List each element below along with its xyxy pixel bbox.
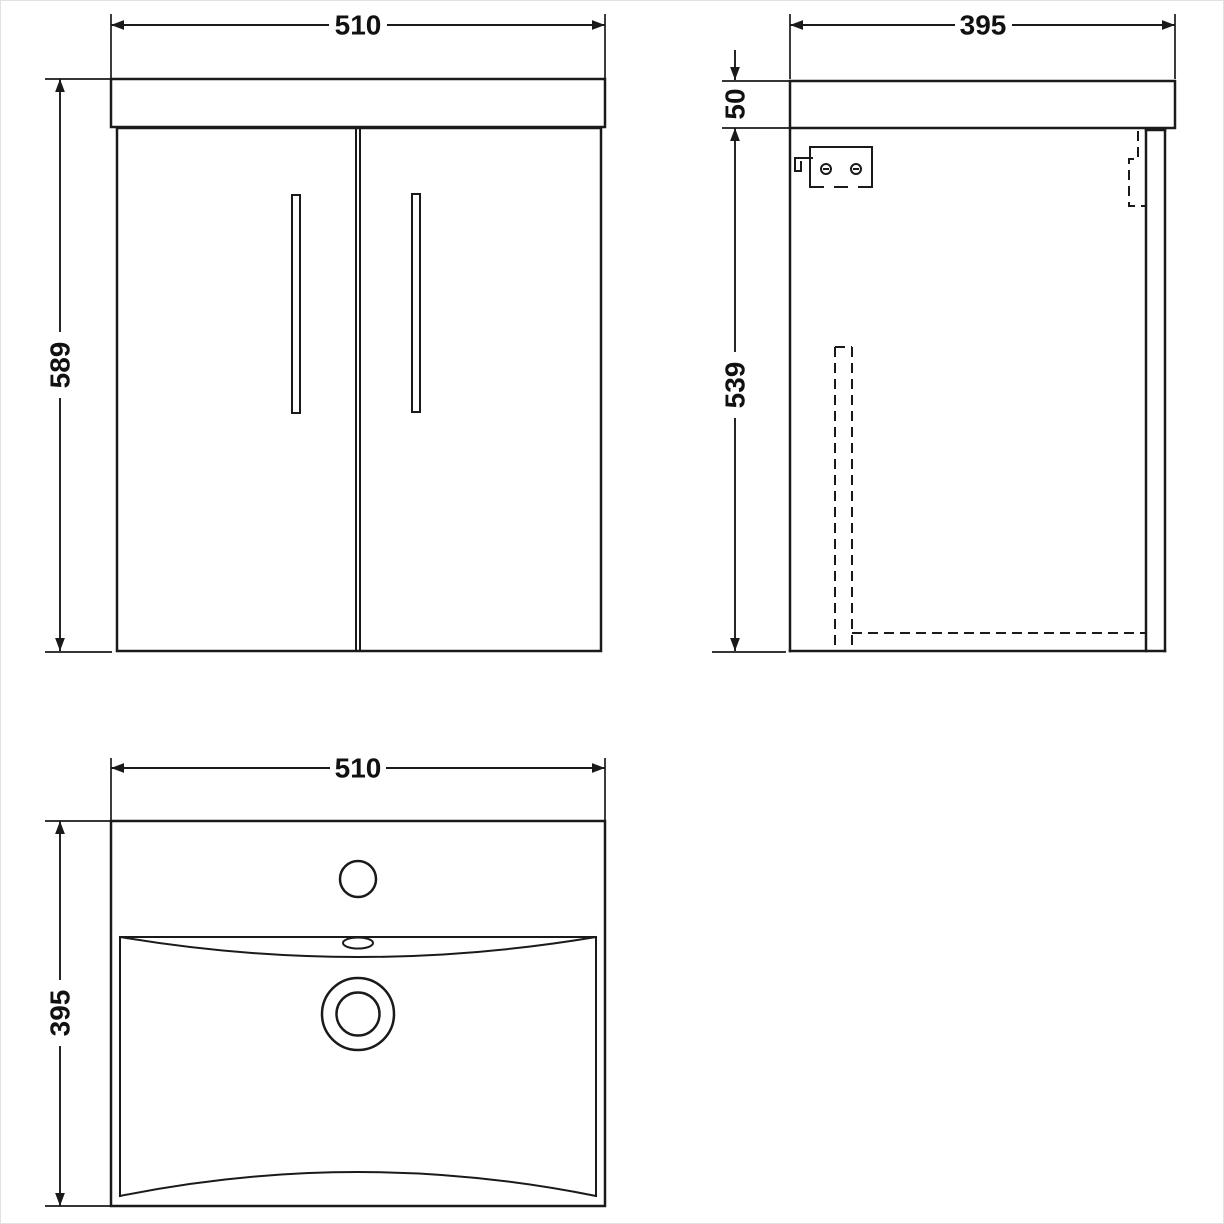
side-height-dim-label: 539 bbox=[720, 362, 751, 409]
side-worktop bbox=[790, 81, 1175, 128]
waste-inner-ring bbox=[337, 993, 380, 1036]
side-depth-dim-label: 395 bbox=[960, 10, 1007, 41]
front-width-dim-label: 510 bbox=[335, 10, 382, 41]
technical-drawing-canvas: 510 589 395 50 bbox=[0, 0, 1224, 1224]
waste-outer-ring bbox=[322, 978, 394, 1050]
side-view: 395 50 539 bbox=[712, 10, 1175, 653]
overflow-slot bbox=[343, 938, 373, 949]
left-door-handle bbox=[292, 195, 300, 413]
drawing-root: 510 589 395 50 bbox=[45, 10, 1176, 1207]
basin-bowl-front-curve bbox=[120, 937, 596, 957]
basin-depth-dim-label: 395 bbox=[45, 990, 76, 1037]
side-worktop-dim-label: 50 bbox=[720, 88, 751, 119]
right-door-handle bbox=[412, 194, 420, 412]
front-worktop bbox=[111, 79, 605, 127]
basin-width-dim-label: 510 bbox=[335, 753, 382, 784]
wall-bracket-outline bbox=[810, 147, 872, 187]
basin-bowl-back-curve bbox=[120, 1172, 596, 1196]
basin-plan-view: 510 395 bbox=[45, 753, 606, 1207]
hidden-hinge-bracket-dashed bbox=[1129, 131, 1146, 206]
drawing-svg: 510 589 395 50 bbox=[0, 0, 1224, 1224]
tap-hole bbox=[340, 861, 376, 897]
front-height-dim-label: 589 bbox=[45, 342, 76, 389]
basin-outer-rim bbox=[111, 821, 605, 1206]
front-view: 510 589 bbox=[45, 10, 606, 653]
